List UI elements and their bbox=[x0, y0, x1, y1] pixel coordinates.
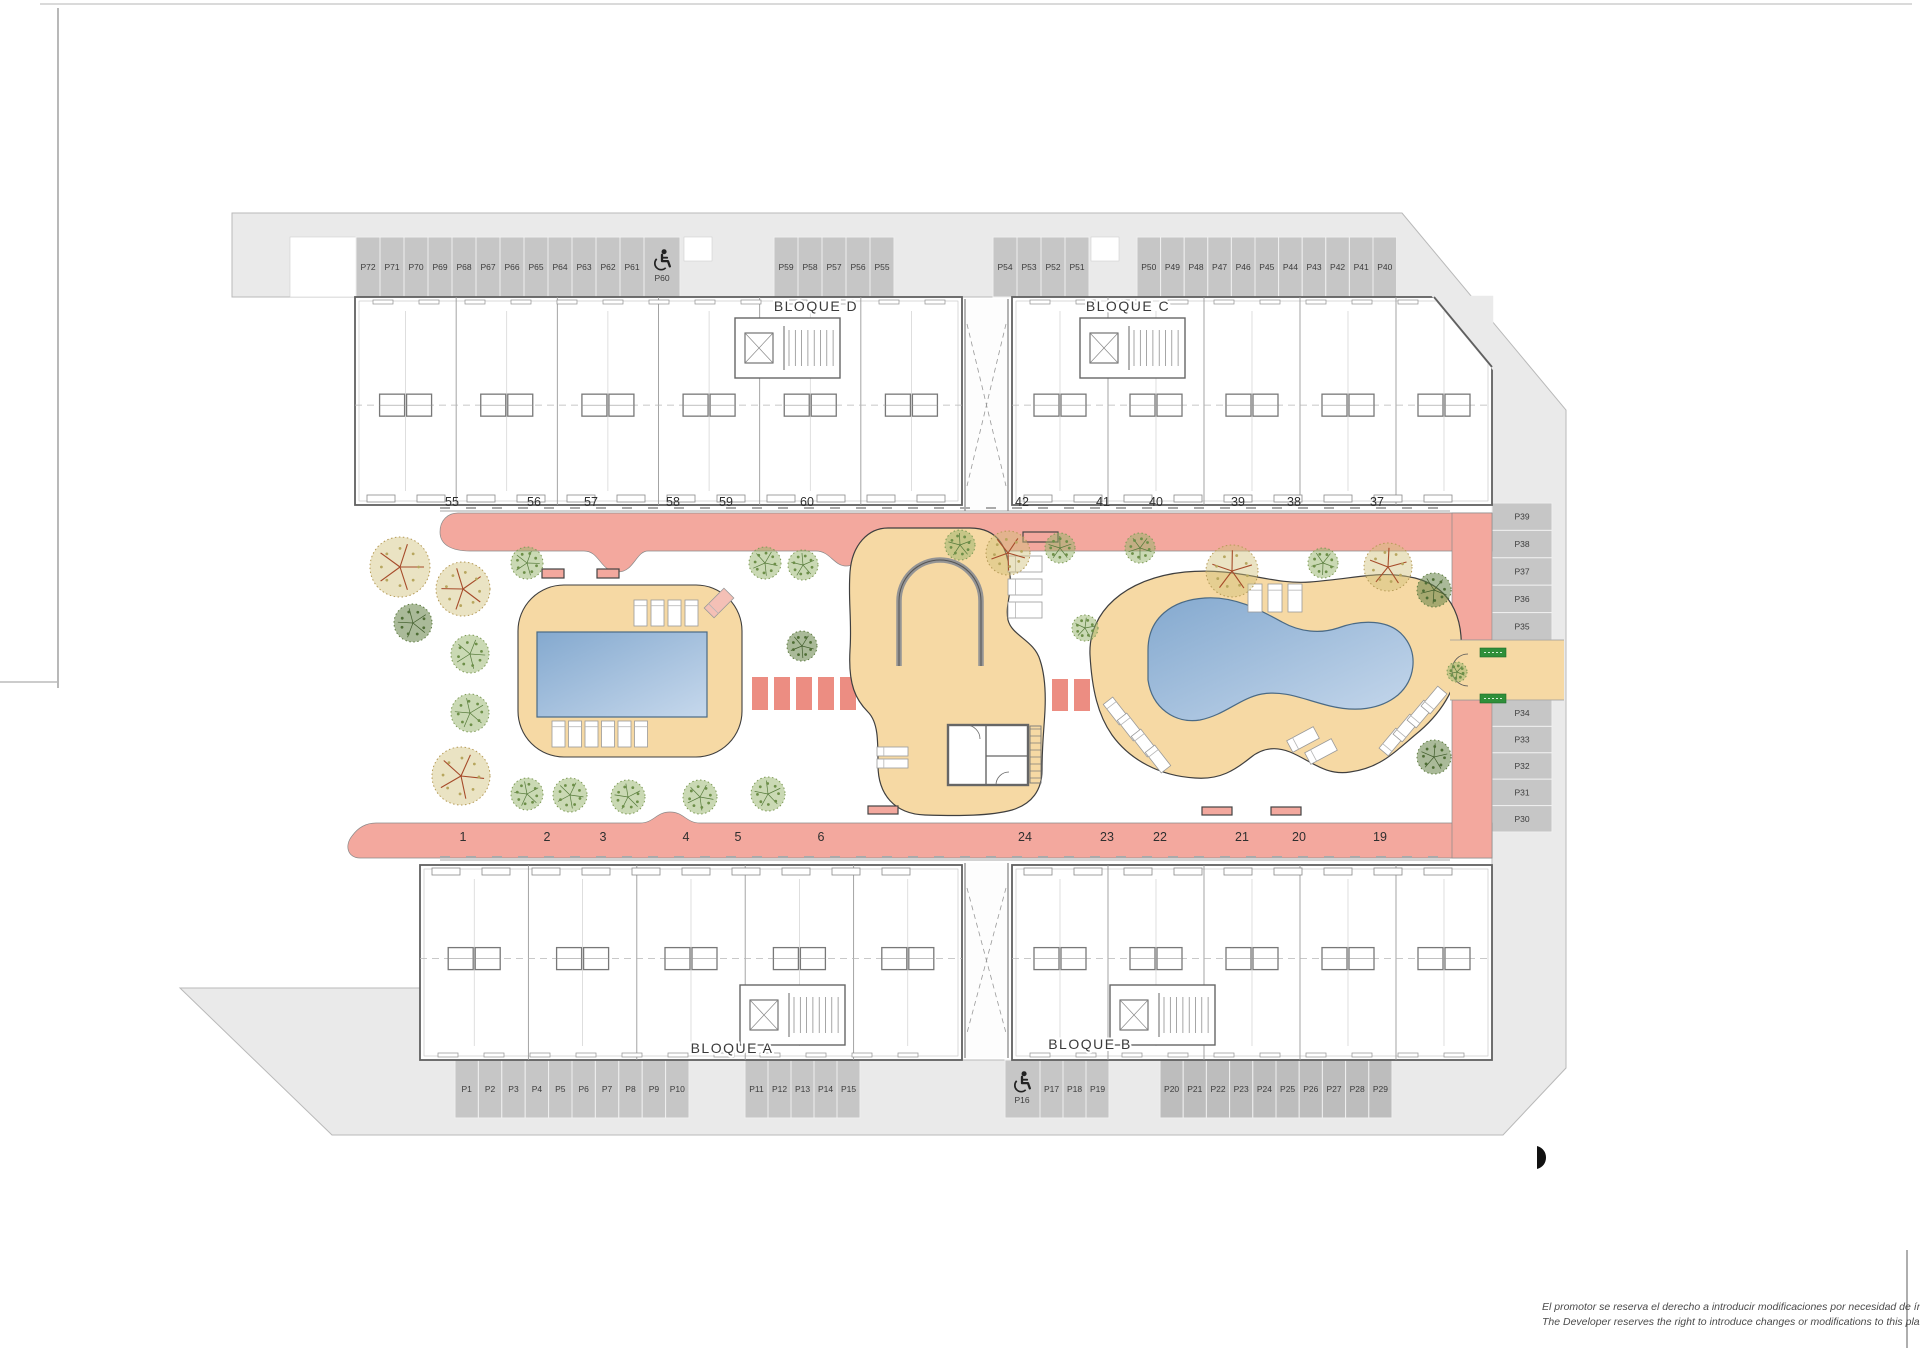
sun-lounger bbox=[1008, 579, 1042, 595]
window-mark bbox=[465, 300, 485, 304]
window-mark bbox=[1260, 1053, 1280, 1057]
terrace-mark bbox=[617, 495, 645, 502]
terrace-mark bbox=[1324, 495, 1352, 502]
parking-stall-label: P41 bbox=[1354, 262, 1369, 272]
parking-stall-label: P14 bbox=[818, 1084, 833, 1094]
olive-tree bbox=[436, 562, 490, 616]
walkway-bottom bbox=[348, 812, 1492, 858]
window-mark bbox=[1398, 300, 1418, 304]
window-mark bbox=[511, 300, 531, 304]
sun-lounger bbox=[1008, 602, 1042, 618]
unit-number: 56 bbox=[527, 495, 541, 509]
parking-stall-label: P53 bbox=[1021, 262, 1036, 272]
unit-number: 59 bbox=[719, 495, 733, 509]
dark-tree bbox=[1417, 740, 1451, 774]
road-walk-notch bbox=[684, 237, 712, 261]
parking-stall-label: P34 bbox=[1514, 708, 1529, 718]
window-mark bbox=[925, 300, 945, 304]
terrace-mark bbox=[817, 495, 845, 502]
crosswalk-stripe bbox=[752, 677, 768, 710]
sun-lounger bbox=[569, 721, 582, 747]
green-tree bbox=[1045, 533, 1075, 563]
sun-lounger bbox=[635, 721, 648, 747]
window-mark bbox=[1214, 1053, 1234, 1057]
bloque-c-label: BLOQUE C bbox=[1086, 298, 1170, 314]
green-tree bbox=[451, 635, 489, 673]
crosswalk-stripe bbox=[796, 677, 812, 710]
window-mark bbox=[1214, 300, 1234, 304]
unit-number: 6 bbox=[818, 830, 825, 844]
parking-stall-label: P42 bbox=[1330, 262, 1345, 272]
parking-stall-label: P52 bbox=[1045, 262, 1060, 272]
residential-block bbox=[1012, 865, 1492, 1060]
unit-number: 1 bbox=[460, 830, 467, 844]
parking-stall-label: P44 bbox=[1283, 262, 1298, 272]
disclaimer-line-english: The Developer reserves the right to intr… bbox=[1542, 1316, 1920, 1328]
window-mark bbox=[622, 1053, 642, 1057]
parking-stall-label: P62 bbox=[600, 262, 615, 272]
parking-stall-label: P11 bbox=[749, 1084, 764, 1094]
window-mark bbox=[668, 1053, 688, 1057]
parking-stall-label: P4 bbox=[532, 1084, 543, 1094]
terrace-mark bbox=[1424, 495, 1452, 502]
residential-block bbox=[355, 297, 962, 505]
terrace-mark bbox=[1424, 868, 1452, 875]
unit-number: 57 bbox=[584, 495, 598, 509]
window-mark bbox=[1352, 1053, 1372, 1057]
unit-number: 37 bbox=[1370, 495, 1384, 509]
unit-number: 60 bbox=[800, 495, 814, 509]
window-mark bbox=[898, 1053, 918, 1057]
terrace-mark bbox=[1074, 868, 1102, 875]
pool-house bbox=[948, 725, 1041, 785]
green-tree bbox=[788, 550, 818, 580]
sun-lounger bbox=[1268, 584, 1282, 612]
parking-stall-label: P21 bbox=[1187, 1084, 1202, 1094]
parking-stall-label: P9 bbox=[649, 1084, 660, 1094]
bloque-d-label: BLOQUE D bbox=[774, 298, 858, 314]
sun-lounger bbox=[877, 747, 908, 756]
terrace-mark bbox=[1274, 868, 1302, 875]
parking-stall-label: P58 bbox=[802, 262, 817, 272]
unit-number: 38 bbox=[1287, 495, 1301, 509]
parking-stall-label: P15 bbox=[841, 1084, 856, 1094]
parking-stall-label: P16 bbox=[1014, 1095, 1029, 1105]
window-mark bbox=[1352, 300, 1372, 304]
olive-tree bbox=[1364, 543, 1412, 591]
unit-number: 4 bbox=[683, 830, 690, 844]
unit-number: 5 bbox=[735, 830, 742, 844]
parking-stall-label: P55 bbox=[874, 262, 889, 272]
green-tree bbox=[611, 780, 645, 814]
parking-stall-label: P7 bbox=[602, 1084, 613, 1094]
window-mark bbox=[1444, 1053, 1464, 1057]
road-walk-notch bbox=[1091, 237, 1119, 261]
parking-stall-label: P3 bbox=[508, 1084, 519, 1094]
parking-stall-label: P8 bbox=[625, 1084, 636, 1094]
green-tree bbox=[683, 780, 717, 814]
green-tree bbox=[1125, 533, 1155, 563]
unit-number: 24 bbox=[1018, 830, 1032, 844]
terrace-mark bbox=[1324, 868, 1352, 875]
sun-lounger bbox=[668, 600, 681, 626]
unit-number: 20 bbox=[1292, 830, 1306, 844]
terrace-mark bbox=[1174, 495, 1202, 502]
parking-stall-label: P50 bbox=[1141, 262, 1156, 272]
parking-stall bbox=[644, 237, 680, 297]
terrace-mark bbox=[767, 495, 795, 502]
parking-stall-label: P28 bbox=[1350, 1084, 1365, 1094]
window-mark bbox=[419, 300, 439, 304]
sun-lounger bbox=[618, 721, 631, 747]
terrace-mark bbox=[432, 868, 460, 875]
parking-stall-label: P25 bbox=[1280, 1084, 1295, 1094]
terrace-mark bbox=[1124, 868, 1152, 875]
terrace-mark bbox=[732, 868, 760, 875]
terrace-mark bbox=[532, 868, 560, 875]
sun-lounger bbox=[1288, 584, 1302, 612]
bench bbox=[597, 569, 619, 578]
sun-lounger bbox=[651, 600, 664, 626]
parking-stall-label: P54 bbox=[997, 262, 1012, 272]
bench bbox=[868, 806, 898, 814]
parking-stall-label: P32 bbox=[1514, 761, 1529, 771]
parking-stall-label: P69 bbox=[432, 262, 447, 272]
window-mark bbox=[879, 300, 899, 304]
crosswalk-stripe bbox=[1074, 679, 1090, 711]
parking-stall-label: P6 bbox=[578, 1084, 589, 1094]
parking-stall-label: P19 bbox=[1090, 1084, 1105, 1094]
green-tree bbox=[1308, 548, 1338, 578]
parking-stall-label: P65 bbox=[528, 262, 543, 272]
parking-stall-label: P36 bbox=[1514, 594, 1529, 604]
terrace-mark bbox=[867, 495, 895, 502]
parking-stall-label: P60 bbox=[654, 273, 669, 283]
window-mark bbox=[1030, 300, 1050, 304]
window-mark bbox=[484, 1053, 504, 1057]
green-tree bbox=[511, 547, 543, 579]
disclaimer-line-spanish: El promotor se reserva el derecho a intr… bbox=[1542, 1301, 1920, 1313]
parking-stall-label: P24 bbox=[1257, 1084, 1272, 1094]
window-mark bbox=[852, 1053, 872, 1057]
terrace-mark bbox=[582, 868, 610, 875]
window-mark bbox=[1122, 1053, 1142, 1057]
parking-stall-label: P18 bbox=[1067, 1084, 1082, 1094]
site-plan-drawing: P72P71P70P69P68P67P66P65P64P63P62P61P60P… bbox=[0, 0, 1920, 1360]
unit-number: 55 bbox=[445, 495, 459, 509]
parking-stall-label: P68 bbox=[456, 262, 471, 272]
page-curl-mark bbox=[1537, 1146, 1546, 1169]
unit-number: 58 bbox=[666, 495, 680, 509]
terrace-mark bbox=[367, 495, 395, 502]
parking-stall-label: P71 bbox=[384, 262, 399, 272]
parking-stall-label: P46 bbox=[1236, 262, 1251, 272]
parking-stall-label: P59 bbox=[778, 262, 793, 272]
green-tree bbox=[945, 530, 975, 560]
crosswalk-stripe bbox=[774, 677, 790, 710]
parking-stall-label: P39 bbox=[1514, 512, 1529, 522]
olive-tree bbox=[432, 747, 490, 805]
parking-stall-label: P67 bbox=[480, 262, 495, 272]
sun-lounger bbox=[585, 721, 598, 747]
parking-stall-label: P45 bbox=[1259, 262, 1274, 272]
olive-tree bbox=[1206, 545, 1258, 597]
terrace-mark bbox=[882, 868, 910, 875]
parking-stall-label: P22 bbox=[1210, 1084, 1225, 1094]
pedestrian-passage bbox=[965, 299, 1008, 511]
terrace-mark bbox=[417, 495, 445, 502]
parking-stall bbox=[1005, 1060, 1040, 1118]
parking-stall-label: P30 bbox=[1514, 814, 1529, 824]
unit-number: 3 bbox=[600, 830, 607, 844]
olive-tree bbox=[986, 531, 1030, 575]
parking-stall-label: P37 bbox=[1514, 567, 1529, 577]
unit-number: 22 bbox=[1153, 830, 1167, 844]
road-walk-notch bbox=[290, 237, 356, 297]
terrace-mark bbox=[1224, 868, 1252, 875]
window-mark bbox=[1030, 1053, 1050, 1057]
bench bbox=[542, 569, 564, 578]
window-mark bbox=[1398, 1053, 1418, 1057]
parking-stall-label: P1 bbox=[461, 1084, 472, 1094]
crosswalk-stripe bbox=[818, 677, 834, 710]
parking-stall-label: P13 bbox=[795, 1084, 810, 1094]
green-tree bbox=[1447, 662, 1467, 682]
bloque-a-label: BLOQUE A bbox=[691, 1040, 774, 1056]
residential-block bbox=[420, 865, 962, 1060]
parking-stall-label: P40 bbox=[1377, 262, 1392, 272]
crosswalk-stripe bbox=[1052, 679, 1068, 711]
sun-lounger bbox=[634, 600, 647, 626]
window-mark bbox=[1306, 1053, 1326, 1057]
terrace-mark bbox=[1024, 868, 1052, 875]
green-tree bbox=[451, 694, 489, 732]
green-tree bbox=[1072, 615, 1098, 641]
unit-number: 2 bbox=[544, 830, 551, 844]
window-mark bbox=[741, 300, 761, 304]
terrace-mark bbox=[917, 495, 945, 502]
parking-stall-label: P48 bbox=[1188, 262, 1203, 272]
parking-stall-label: P10 bbox=[670, 1084, 685, 1094]
parking-stall-label: P66 bbox=[504, 262, 519, 272]
sun-lounger bbox=[552, 721, 565, 747]
dark-tree bbox=[1417, 573, 1451, 607]
unit-number: 21 bbox=[1235, 830, 1249, 844]
window-mark bbox=[530, 1053, 550, 1057]
unit-number: 40 bbox=[1149, 495, 1163, 509]
pedestrian-passage bbox=[965, 863, 1008, 1058]
parking-stall-label: P43 bbox=[1306, 262, 1321, 272]
parking-stall-label: P20 bbox=[1164, 1084, 1179, 1094]
parking-stall-label: P72 bbox=[360, 262, 375, 272]
window-mark bbox=[373, 300, 393, 304]
green-tree bbox=[749, 547, 781, 579]
parking-stall-label: P51 bbox=[1069, 262, 1084, 272]
sun-lounger bbox=[685, 600, 698, 626]
parking-stall-label: P12 bbox=[772, 1084, 787, 1094]
parking-stall-label: P33 bbox=[1514, 735, 1529, 745]
parking-stall-label: P23 bbox=[1234, 1084, 1249, 1094]
green-tree bbox=[751, 777, 785, 811]
bloque-b-label: BLOQUE B bbox=[1048, 1036, 1132, 1052]
parking-stall-label: P63 bbox=[576, 262, 591, 272]
stair-elevator-core bbox=[740, 985, 845, 1045]
stair-elevator-core bbox=[735, 318, 840, 378]
parking-stall-label: P47 bbox=[1212, 262, 1227, 272]
left-pool bbox=[537, 632, 707, 717]
parking-stall-label: P57 bbox=[826, 262, 841, 272]
terrace-mark bbox=[782, 868, 810, 875]
bench bbox=[1202, 807, 1232, 815]
window-mark bbox=[806, 1053, 826, 1057]
window-mark bbox=[557, 300, 577, 304]
parking-stall-label: P17 bbox=[1044, 1084, 1059, 1094]
window-mark bbox=[649, 300, 669, 304]
parking-stall-label: P2 bbox=[485, 1084, 496, 1094]
terrace-mark bbox=[632, 868, 660, 875]
window-mark bbox=[1306, 300, 1326, 304]
terrace-mark bbox=[682, 868, 710, 875]
window-mark bbox=[1168, 1053, 1188, 1057]
parking-stall-label: P70 bbox=[408, 262, 423, 272]
parking-stall-label: P35 bbox=[1514, 621, 1529, 631]
parking-stall-label: P5 bbox=[555, 1084, 566, 1094]
unit-number: 41 bbox=[1096, 495, 1110, 509]
parking-stall-label: P49 bbox=[1165, 262, 1180, 272]
window-mark bbox=[695, 300, 715, 304]
terrace-mark bbox=[832, 868, 860, 875]
parking-stall-label: P29 bbox=[1373, 1084, 1388, 1094]
window-mark bbox=[1168, 300, 1188, 304]
window-mark bbox=[438, 1053, 458, 1057]
dark-tree bbox=[787, 631, 817, 661]
bench bbox=[1271, 807, 1301, 815]
dark-tree bbox=[394, 604, 432, 642]
parking-stall-label: P61 bbox=[624, 262, 639, 272]
window-mark bbox=[576, 1053, 596, 1057]
terrace-mark bbox=[1124, 495, 1152, 502]
window-mark bbox=[603, 300, 623, 304]
unit-number: 42 bbox=[1015, 495, 1029, 509]
east-entrance bbox=[1450, 640, 1564, 703]
terrace-mark bbox=[1374, 868, 1402, 875]
parking-stall-label: P27 bbox=[1326, 1084, 1341, 1094]
parking-stall-label: P38 bbox=[1514, 539, 1529, 549]
parking-stall-label: P56 bbox=[850, 262, 865, 272]
window-mark bbox=[1260, 300, 1280, 304]
unit-number: 23 bbox=[1100, 830, 1114, 844]
unit-number: 39 bbox=[1231, 495, 1245, 509]
parking-stall-label: P26 bbox=[1303, 1084, 1318, 1094]
terrace-mark bbox=[482, 868, 510, 875]
green-tree bbox=[511, 778, 543, 810]
unit-number: 19 bbox=[1373, 830, 1387, 844]
stair-elevator-core bbox=[1080, 318, 1185, 378]
terrace-mark bbox=[467, 495, 495, 502]
green-tree bbox=[553, 778, 587, 812]
sun-lounger bbox=[877, 759, 908, 768]
window-mark bbox=[1076, 1053, 1096, 1057]
walkway-right-lower bbox=[1452, 700, 1492, 858]
sun-lounger bbox=[602, 721, 615, 747]
terrace-mark bbox=[1174, 868, 1202, 875]
parking-stall-label: P31 bbox=[1514, 787, 1529, 797]
parking-stall-label: P64 bbox=[552, 262, 567, 272]
olive-tree bbox=[370, 537, 430, 597]
